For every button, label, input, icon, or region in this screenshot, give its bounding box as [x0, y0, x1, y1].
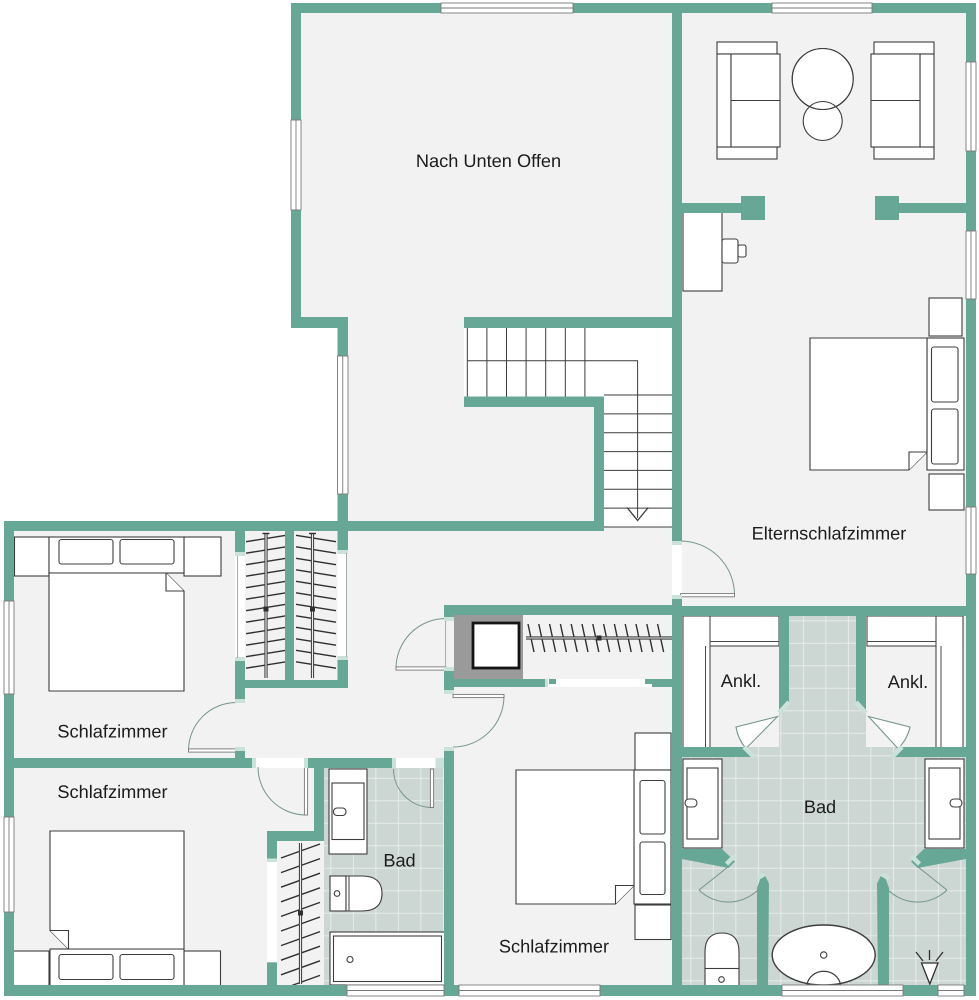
svg-text:Bad: Bad — [804, 797, 836, 817]
svg-text:Schlafzimmer: Schlafzimmer — [57, 721, 167, 741]
svg-text:Ankl.: Ankl. — [888, 672, 928, 692]
svg-text:Schlafzimmer: Schlafzimmer — [499, 936, 609, 956]
svg-text:Nach Unten Offen: Nach Unten Offen — [416, 151, 561, 171]
svg-text:Schlafzimmer: Schlafzimmer — [57, 782, 167, 802]
svg-text:Bad: Bad — [383, 850, 415, 870]
svg-text:Ankl.: Ankl. — [721, 671, 761, 691]
svg-text:Elternschlafzimmer: Elternschlafzimmer — [752, 523, 907, 543]
